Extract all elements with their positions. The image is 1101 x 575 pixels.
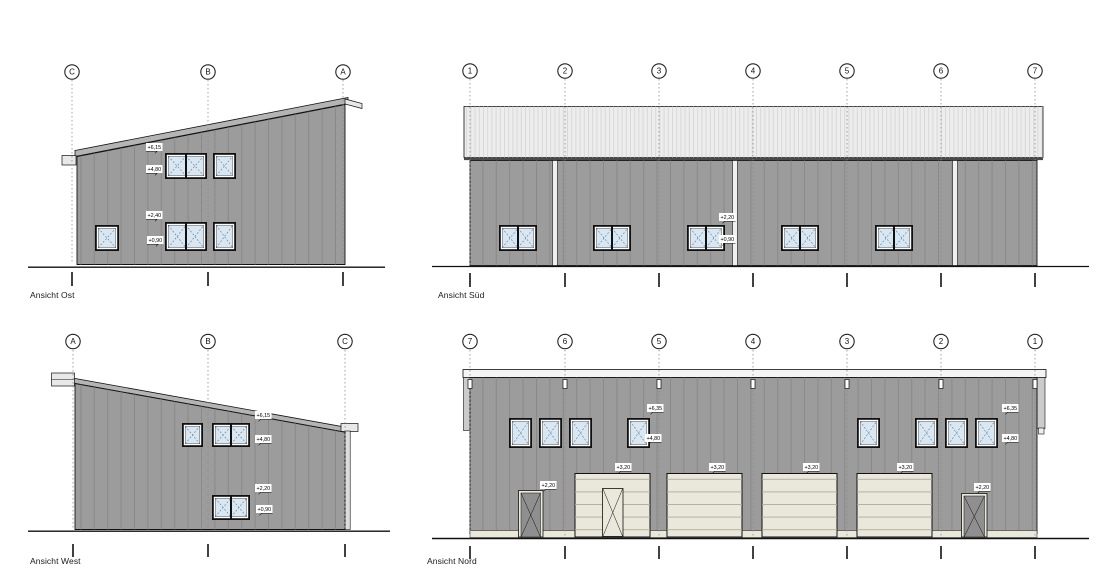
dim-label: +4,80 — [148, 167, 162, 173]
grid-label: C — [342, 337, 348, 346]
sued-eave-edge — [464, 158, 1043, 161]
dim-label: +2,20 — [542, 483, 556, 489]
grid-label: A — [340, 68, 346, 77]
garage-door-2 — [667, 474, 742, 538]
nord-gutter-bracket — [1039, 428, 1045, 434]
view-west-drawing: ABC+6,15+4,80+2,20+0,90 — [20, 320, 400, 575]
dim-label: +6,15 — [148, 145, 162, 151]
garage-door-3 — [762, 474, 837, 538]
dim-label: +6,35 — [1004, 406, 1018, 412]
dim-label: +0,90 — [149, 238, 163, 244]
west-downpipe — [345, 431, 350, 530]
grid-label: 4 — [751, 337, 756, 346]
nord-verge-right — [1037, 378, 1045, 429]
sued-roof-stripes — [464, 107, 1043, 158]
grid-label: 3 — [657, 67, 662, 76]
view-ost-drawing: CBA+6,15+4,80+2,40+0,90 — [20, 50, 400, 310]
view-sued-drawing: 1234567+2,20+0,90 — [430, 50, 1090, 310]
elevation-sheet: CBA+6,15+4,80+2,40+0,90 Ansicht Ost 1234… — [0, 0, 1101, 575]
nord-plinth — [470, 531, 1037, 538]
grid-label: 4 — [751, 67, 756, 76]
sued-title: Ansicht Süd — [438, 290, 484, 300]
facade-clip — [657, 380, 661, 389]
grid-label: A — [70, 337, 76, 346]
grid-label: 7 — [468, 337, 473, 346]
dim-label: +3,20 — [711, 465, 725, 471]
west-gutter-right — [341, 424, 358, 432]
nord-wall-seams — [470, 378, 1037, 534]
facade-clip — [751, 380, 755, 389]
dim-label: +0,90 — [258, 507, 272, 513]
dim-label: +4,80 — [257, 437, 271, 443]
grid-label: 3 — [845, 337, 850, 346]
ost-title: Ansicht Ost — [30, 290, 75, 300]
dim-label: +3,20 — [617, 465, 631, 471]
person-door-left — [519, 491, 544, 538]
grid-label: 6 — [939, 67, 944, 76]
sued-downpipe-1 — [553, 161, 558, 266]
west-title: Ansicht West — [30, 556, 81, 566]
dim-label: +0,90 — [721, 237, 735, 243]
nord-title: Ansicht Nord — [427, 556, 477, 566]
facade-clip — [468, 380, 472, 389]
grid-label: 5 — [845, 67, 850, 76]
grid-label: 6 — [563, 337, 568, 346]
view-nord-drawing: 7654321+6,35+4,80+6,35+4,80+3,20+3,20+3,… — [430, 320, 1090, 575]
grid-label: 7 — [1033, 67, 1038, 76]
grid-label: 5 — [657, 337, 662, 346]
facade-clip — [939, 380, 943, 389]
garage-door-1 — [575, 474, 650, 538]
dim-label: +3,20 — [805, 465, 819, 471]
dim-label: +6,15 — [257, 413, 271, 419]
dim-label: +2,20 — [257, 486, 271, 492]
dim-label: +6,35 — [649, 406, 663, 412]
grid-label: B — [205, 337, 210, 346]
dim-label: +4,80 — [647, 436, 661, 442]
facade-clip — [1033, 380, 1037, 389]
grid-label: 2 — [563, 67, 568, 76]
person-door-right — [962, 494, 988, 538]
grid-label: 1 — [468, 67, 473, 76]
dim-label: +2,20 — [721, 215, 735, 221]
facade-clip — [563, 380, 567, 389]
sued-downpipe-3 — [953, 161, 958, 266]
ost-gutter-left — [62, 156, 76, 166]
ost-roof-tip — [345, 99, 362, 109]
grid-label: 2 — [939, 337, 944, 346]
facade-clip — [845, 380, 849, 389]
grid-label: C — [69, 68, 75, 77]
nord-fascia — [463, 370, 1046, 378]
dim-label: +2,20 — [976, 485, 990, 491]
dim-label: +2,40 — [148, 213, 162, 219]
grid-label: 1 — [1033, 337, 1038, 346]
grid-label: B — [205, 68, 210, 77]
garage-door-4 — [857, 474, 932, 538]
dim-label: +4,80 — [1004, 436, 1018, 442]
dim-label: +3,20 — [899, 465, 913, 471]
